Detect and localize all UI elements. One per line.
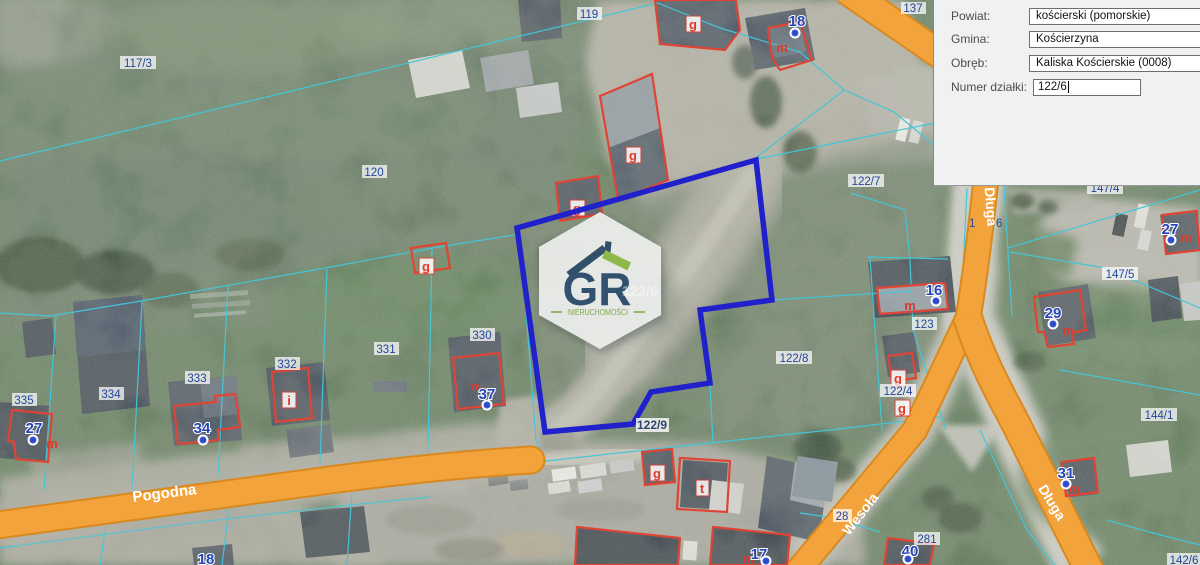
svg-text:m: m xyxy=(1062,323,1074,338)
svg-text:1: 1 xyxy=(969,218,975,230)
svg-text:NIERUCHOMOŚCI: NIERUCHOMOŚCI xyxy=(568,308,628,317)
svg-text:m: m xyxy=(1180,230,1192,245)
svg-text:334: 334 xyxy=(101,389,121,401)
svg-text:g: g xyxy=(898,401,906,416)
svg-text:122/9: 122/9 xyxy=(637,418,667,432)
svg-text:122/8: 122/8 xyxy=(780,353,809,365)
svg-text:m: m xyxy=(776,40,788,55)
svg-text:333: 333 xyxy=(187,373,206,385)
svg-text:122/7: 122/7 xyxy=(852,176,881,188)
svg-text:m: m xyxy=(904,298,916,313)
svg-text:6: 6 xyxy=(996,218,1002,230)
svg-text:i: i xyxy=(287,393,291,408)
svg-text:t: t xyxy=(700,481,705,496)
svg-text:142/6: 142/6 xyxy=(1170,555,1199,565)
svg-text:34: 34 xyxy=(194,420,211,437)
svg-text:281: 281 xyxy=(917,534,936,546)
svg-text:g: g xyxy=(653,466,661,481)
svg-text:331: 331 xyxy=(376,344,395,356)
svg-text:144/1: 144/1 xyxy=(1145,410,1174,422)
svg-text:120: 120 xyxy=(364,167,383,179)
svg-text:m: m xyxy=(46,436,58,451)
svg-text:147/5: 147/5 xyxy=(1106,269,1135,281)
svg-text:g: g xyxy=(689,17,697,32)
svg-text:18: 18 xyxy=(198,551,215,565)
svg-text:330: 330 xyxy=(472,330,491,342)
svg-text:119: 119 xyxy=(580,9,598,21)
svg-text:18: 18 xyxy=(789,13,806,30)
svg-text:g: g xyxy=(629,148,637,163)
svg-text:g: g xyxy=(422,259,430,274)
svg-text:335: 335 xyxy=(14,395,33,407)
svg-text:122/4: 122/4 xyxy=(884,386,913,398)
svg-text:27: 27 xyxy=(26,420,43,437)
svg-text:332: 332 xyxy=(277,359,296,371)
svg-text:28: 28 xyxy=(836,511,849,523)
svg-text:137: 137 xyxy=(903,3,922,15)
svg-text:g: g xyxy=(894,371,902,386)
svg-text:122/6: 122/6 xyxy=(622,284,658,300)
svg-text:117/3: 117/3 xyxy=(124,58,152,70)
svg-text:123: 123 xyxy=(914,319,933,331)
